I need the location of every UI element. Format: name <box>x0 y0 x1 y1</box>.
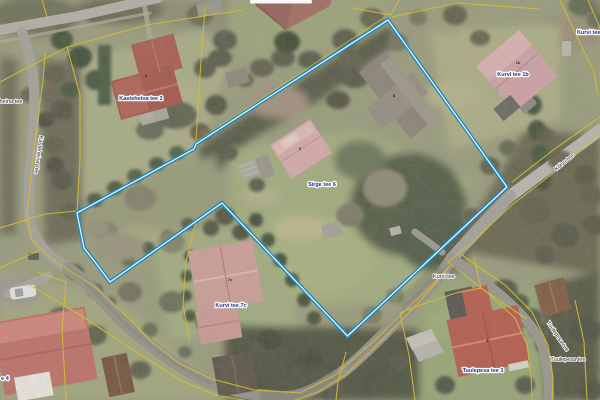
svg-text:Kurvi tee 7c: Kurvi tee 7c <box>215 303 246 309</box>
svg-text:7c: 7c <box>228 277 233 282</box>
svg-text:Kurvi tee 8: Kurvi tee 8 <box>577 30 600 36</box>
svg-text:Tuulepesa tee 3: Tuulepesa tee 3 <box>463 368 504 374</box>
svg-text:Sirge tee 6: Sirge tee 6 <box>308 182 336 188</box>
svg-text:1b: 1b <box>516 60 521 65</box>
svg-text:Tuulepesa tee: Tuulepesa tee <box>550 357 585 363</box>
svg-text:e 4: e 4 <box>1 376 10 382</box>
svg-text:Kurvi tee: Kurvi tee <box>433 274 455 280</box>
svg-text:heina tee: heina tee <box>0 99 23 105</box>
svg-text:Kasteheina tee 2: Kasteheina tee 2 <box>119 96 162 102</box>
svg-text:Kurvi tee 1b: Kurvi tee 1b <box>497 72 529 78</box>
